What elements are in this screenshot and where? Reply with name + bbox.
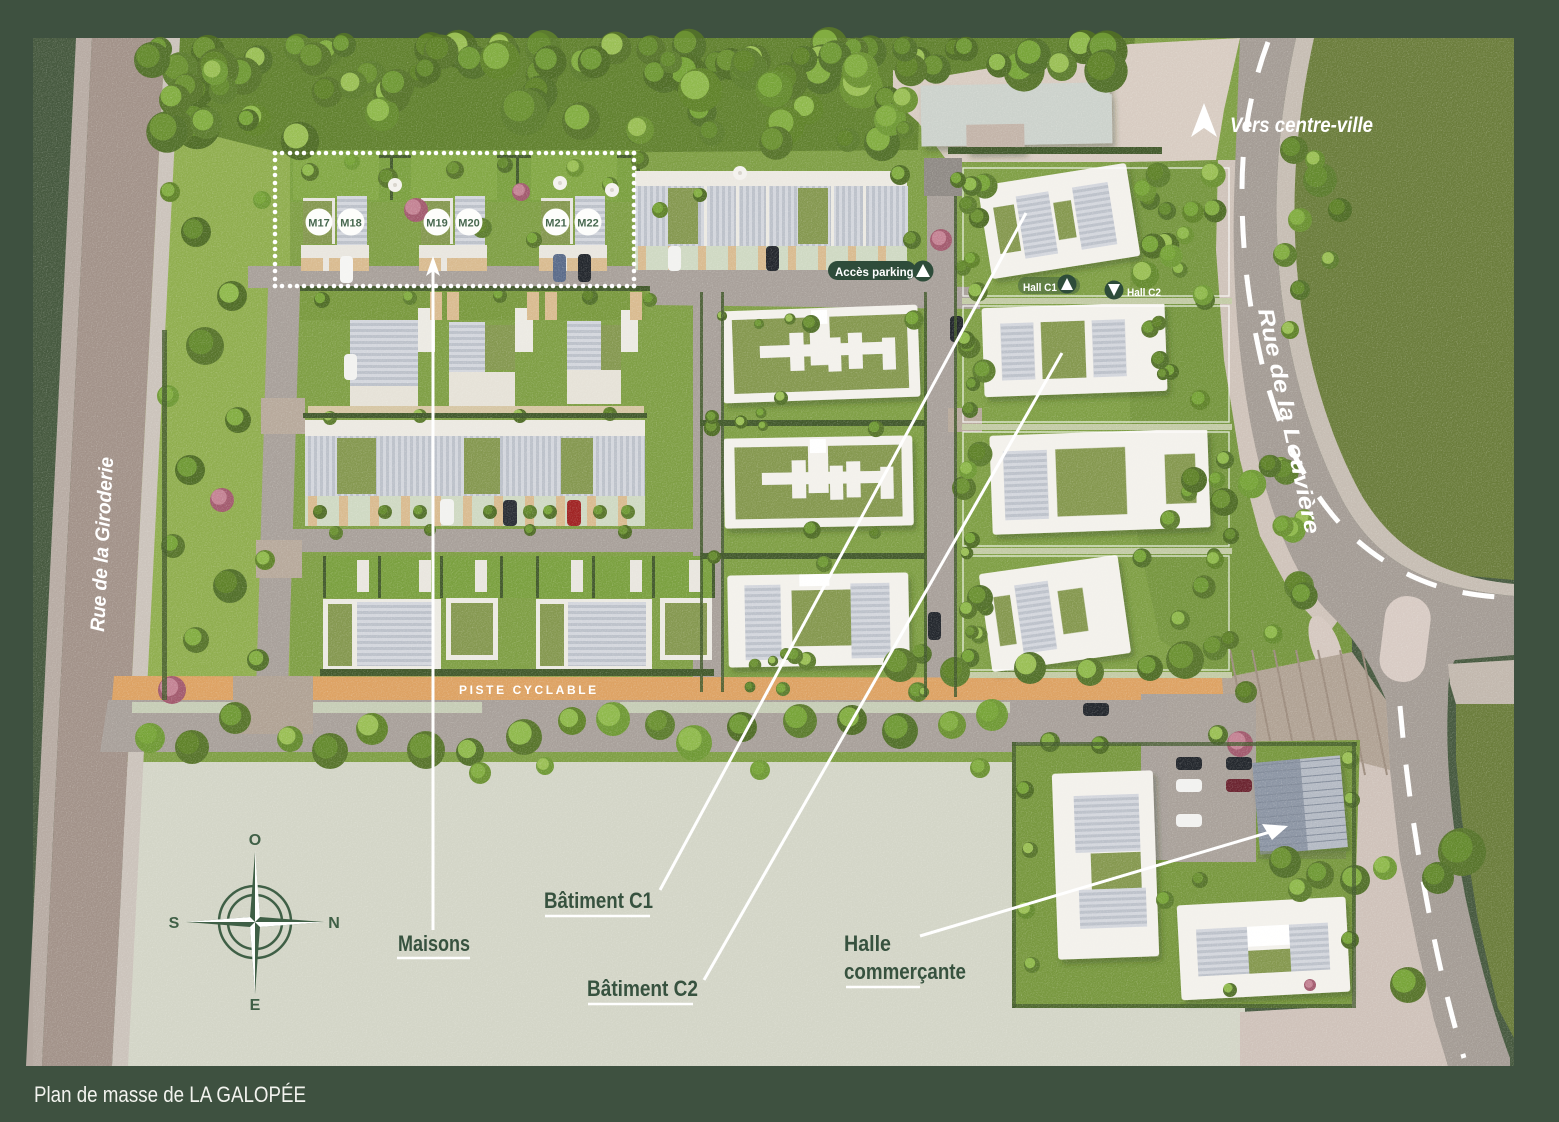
- svg-text:Vers centre-ville: Vers centre-ville: [1230, 114, 1373, 137]
- svg-text:Hall C2: Hall C2: [1127, 287, 1161, 299]
- svg-text:M18: M18: [340, 218, 361, 230]
- svg-text:PISTE CYCLABLE: PISTE CYCLABLE: [459, 683, 599, 697]
- svg-text:Plan de masse de LA GALOPÉE: Plan de masse de LA GALOPÉE: [34, 1082, 306, 1107]
- svg-text:Bâtiment C1: Bâtiment C1: [544, 888, 653, 913]
- svg-text:M20: M20: [458, 218, 479, 230]
- svg-text:N: N: [328, 915, 340, 932]
- svg-text:Halle: Halle: [844, 931, 891, 956]
- svg-text:commerçante: commerçante: [844, 959, 966, 984]
- svg-text:M19: M19: [426, 218, 447, 230]
- svg-text:M22: M22: [577, 218, 598, 230]
- svg-text:E: E: [250, 997, 261, 1014]
- svg-text:M17: M17: [308, 218, 329, 230]
- svg-text:S: S: [169, 915, 180, 932]
- svg-text:Maisons: Maisons: [398, 931, 470, 956]
- svg-text:M21: M21: [545, 218, 566, 230]
- svg-text:Bâtiment C2: Bâtiment C2: [587, 976, 698, 1001]
- svg-text:Accès parking: Accès parking: [835, 267, 914, 279]
- svg-text:O: O: [249, 832, 261, 849]
- svg-text:Hall C1: Hall C1: [1023, 282, 1057, 294]
